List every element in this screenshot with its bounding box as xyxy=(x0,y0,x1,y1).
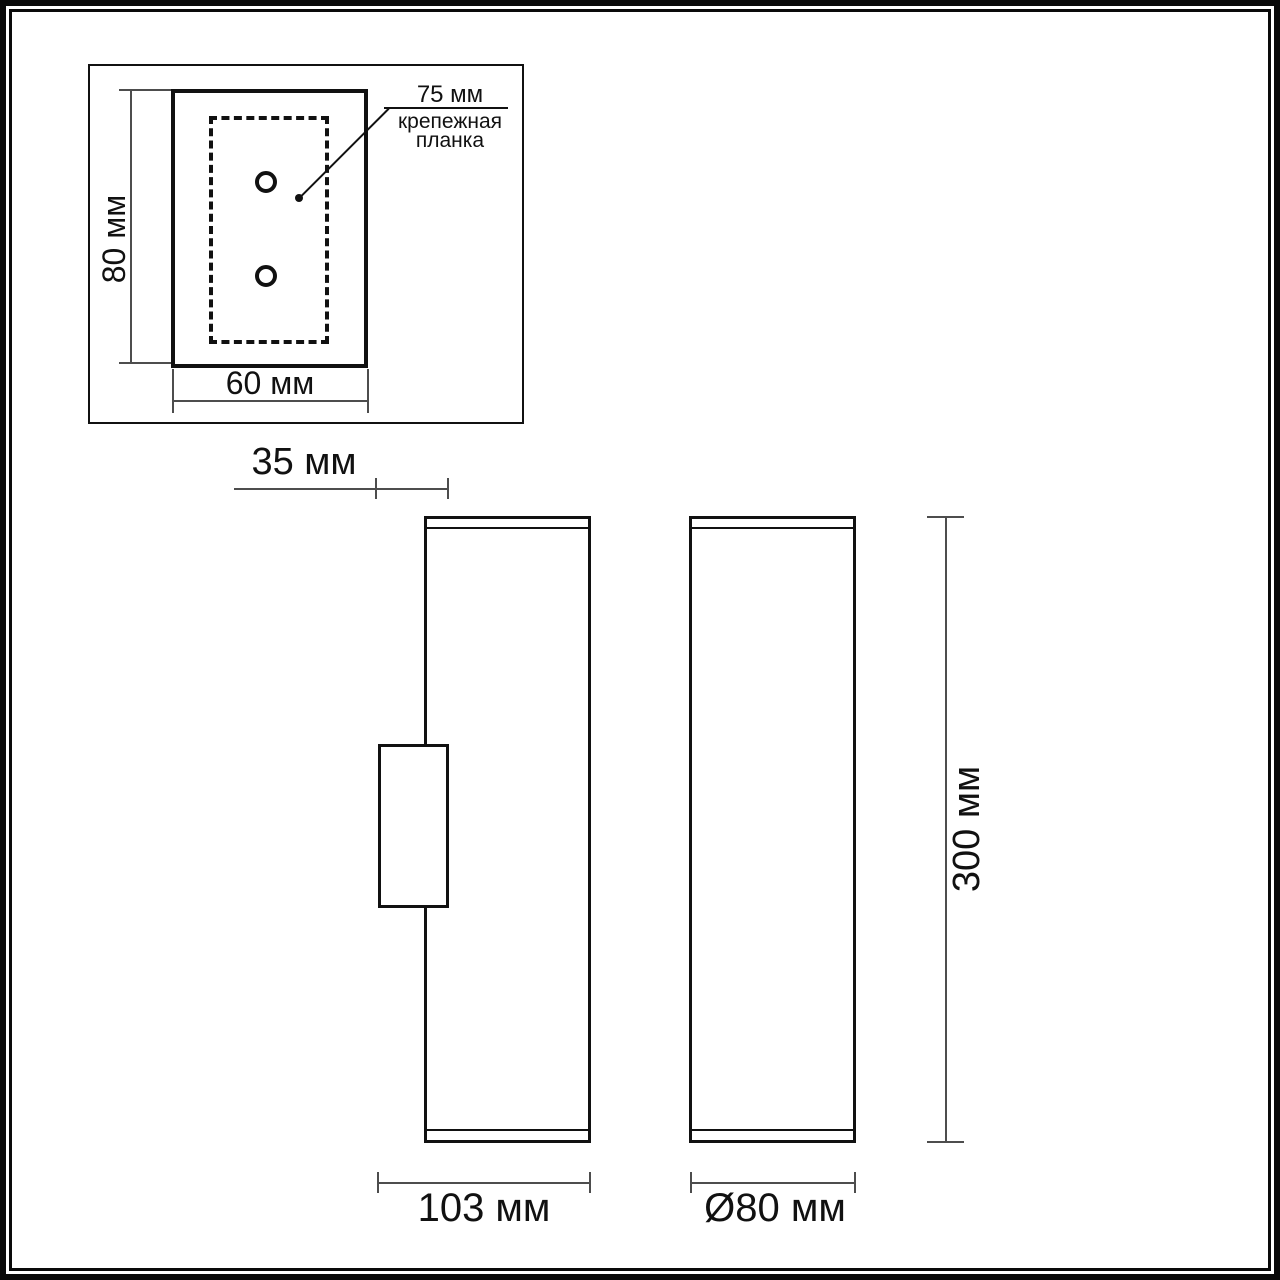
diameter-dim-label: Ø80 мм xyxy=(704,1187,846,1229)
front-view-top-seam xyxy=(692,527,853,529)
side-view-top-seam xyxy=(427,527,588,529)
plate-height-dim-tick-top xyxy=(119,89,171,91)
plate-width-dim-ext-right xyxy=(367,369,369,413)
diameter-dim-tick-left xyxy=(690,1172,692,1193)
plate-height-dim-label: 80 мм xyxy=(98,195,130,283)
width-dim-tick-right xyxy=(589,1172,591,1193)
annotation-name-label: крепежная планка xyxy=(398,112,502,150)
front-view-body xyxy=(689,516,856,1143)
wall-bracket xyxy=(378,744,449,908)
width-dim-label: 103 мм xyxy=(418,1187,551,1229)
depth-dim-line xyxy=(234,488,449,490)
screw-hole-bottom xyxy=(255,265,277,287)
diameter-dim-line xyxy=(691,1182,856,1184)
side-view-body xyxy=(424,516,591,1143)
diameter-dim-tick-right xyxy=(854,1172,856,1193)
plate-width-dim-ext-left xyxy=(172,369,174,413)
side-view-bottom-seam xyxy=(427,1129,588,1131)
screw-hole-top xyxy=(255,171,277,193)
plate-width-dim-label: 60 мм xyxy=(226,367,314,401)
annotation-dim-label: 75 мм xyxy=(417,82,483,107)
width-dim-line xyxy=(378,1182,591,1184)
width-dim-tick-left xyxy=(377,1172,379,1193)
depth-dim-tick-left xyxy=(375,478,377,499)
front-view-bottom-seam xyxy=(692,1129,853,1131)
mounting-bracket-dashed-outline xyxy=(209,116,329,344)
height-dim-label: 300 мм xyxy=(948,766,986,892)
depth-dim-tick-right xyxy=(447,478,449,499)
depth-dim-label: 35 мм xyxy=(251,443,356,483)
plate-height-dim-tick-bottom xyxy=(119,362,171,364)
technical-drawing-page: 75 мм крепежная планка 80 мм 60 мм 35 мм… xyxy=(0,0,1280,1280)
